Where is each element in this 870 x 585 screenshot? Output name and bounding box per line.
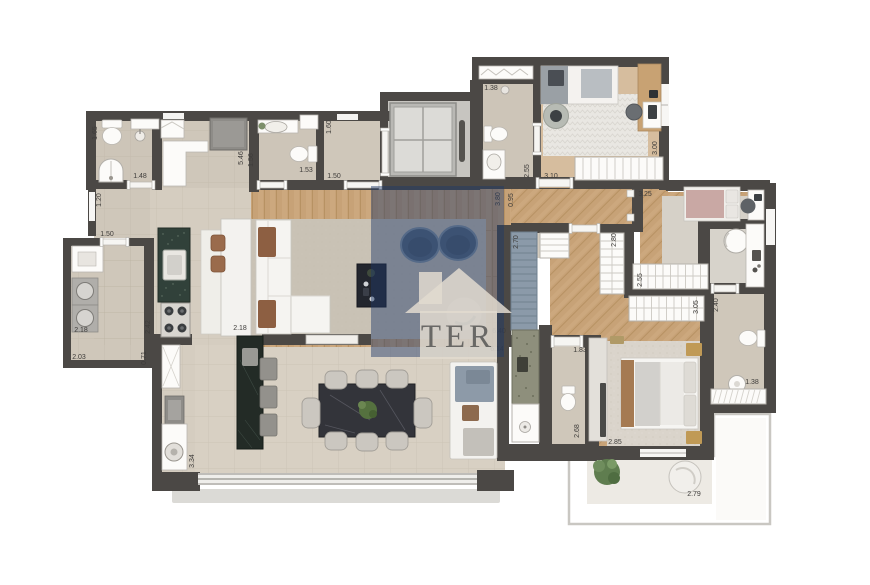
svg-text:2.42: 2.42 <box>145 320 152 334</box>
svg-text:3.34: 3.34 <box>189 454 196 468</box>
svg-text:TER: TER <box>421 319 495 355</box>
svg-text:2.79: 2.79 <box>687 491 701 498</box>
svg-text:3.05: 3.05 <box>693 300 700 314</box>
svg-text:1.38: 1.38 <box>745 379 759 386</box>
svg-text:2.40: 2.40 <box>713 298 720 312</box>
svg-text:2.80: 2.80 <box>611 233 618 247</box>
svg-text:1.50: 1.50 <box>327 173 341 180</box>
svg-text:2.55: 2.55 <box>637 273 644 287</box>
svg-text:5.46: 5.46 <box>238 151 245 165</box>
svg-text:2.68: 2.68 <box>574 424 581 438</box>
svg-text:1.60: 1.60 <box>326 120 333 134</box>
svg-text:2.18: 2.18 <box>233 325 247 332</box>
svg-text:3.10: 3.10 <box>544 173 558 180</box>
svg-text:2.55: 2.55 <box>524 164 531 178</box>
svg-text:1.50: 1.50 <box>100 231 114 238</box>
svg-text:1.48: 1.48 <box>133 173 147 180</box>
svg-text:3.00: 3.00 <box>652 141 659 155</box>
svg-text:1.65: 1.65 <box>92 126 99 140</box>
svg-text:1.83: 1.83 <box>573 347 587 354</box>
svg-text:2.03: 2.03 <box>72 354 86 361</box>
svg-text:1.20: 1.20 <box>96 193 103 207</box>
svg-text:3.25: 3.25 <box>638 191 652 198</box>
svg-text:2.70: 2.70 <box>513 235 520 249</box>
svg-text:1.53: 1.53 <box>299 167 313 174</box>
svg-text:0.71: 0.71 <box>141 351 148 365</box>
svg-text:1.38: 1.38 <box>484 85 498 92</box>
svg-text:2.85: 2.85 <box>608 439 622 446</box>
svg-text:1.56: 1.56 <box>248 153 255 167</box>
svg-text:2.18: 2.18 <box>74 327 88 334</box>
svg-text:0.95: 0.95 <box>508 193 515 207</box>
